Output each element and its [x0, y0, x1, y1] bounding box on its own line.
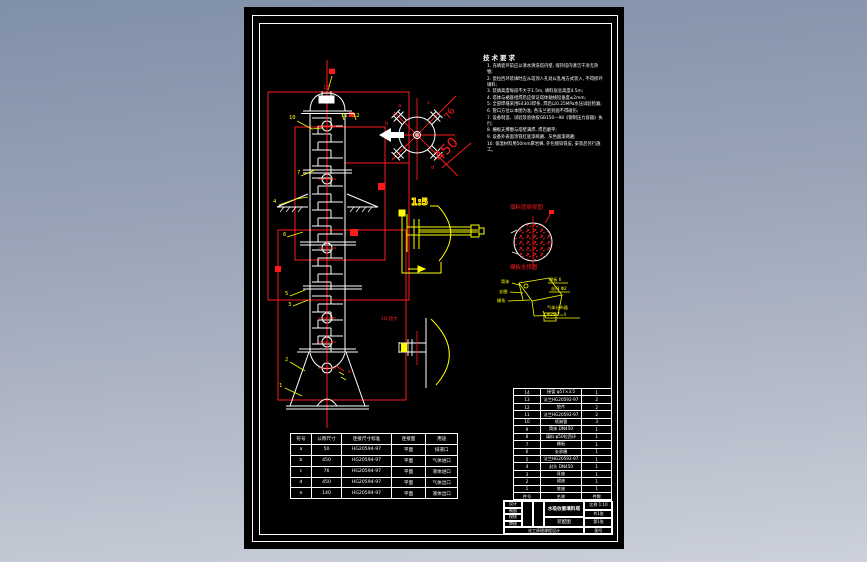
table-cell: 排液口	[426, 445, 457, 455]
support-label-bottom-2: Φ25 Z=4	[547, 312, 566, 317]
table-cell: 9	[514, 426, 541, 432]
note-line: 7. 设备制造、试验及验收按GB150—98《钢制压力容器》执行;	[487, 116, 603, 128]
notes-title: 技术要求	[483, 52, 517, 62]
table-cell: 1	[582, 456, 611, 462]
bom-table: 14接管 φ57×3.5113法兰HG20592-97212垫片211法兰HG2…	[513, 388, 612, 500]
table-row: e140HG20594-97平面液体出口	[291, 488, 457, 499]
sheets-cell: 共1张	[584, 510, 613, 519]
drawing-subtitle: 装配图	[544, 517, 584, 527]
table-cell: a	[291, 445, 312, 455]
table-cell: 2	[582, 404, 611, 410]
table-cell: 筒体 DN450	[541, 426, 582, 432]
signature-column	[522, 501, 533, 527]
table-cell: 1	[582, 463, 611, 469]
table-row: 3耳座1	[514, 471, 611, 478]
project-name: 化工原理课程设计	[504, 527, 584, 535]
support-label-left-2: 支圈	[499, 289, 507, 295]
table-cell: HG20594-97	[342, 445, 392, 455]
support-label-left-1: 筒体	[501, 279, 509, 285]
callout-1: 1	[279, 383, 282, 389]
drawing-no-cell: 图号	[584, 527, 613, 536]
callout-5: 5	[285, 291, 288, 297]
table-row: 6支承圈1	[514, 449, 611, 456]
table-cell: 7	[514, 441, 541, 447]
table-cell: 10	[514, 419, 541, 425]
table-cell: c	[291, 467, 312, 477]
title-block: 设计 制图 校核 审核 化工原理课程设计 水吸收氨填料塔 装配图 比例 1:10…	[503, 500, 612, 534]
callout-6: 6	[283, 232, 286, 238]
table-cell: b	[291, 456, 312, 466]
table-cell: 50	[312, 445, 342, 455]
table-header-cell: 连接面	[392, 434, 426, 444]
table-cell: 2	[514, 478, 541, 484]
note-line: 8. 栅板支撑圈与塔壁满焊, 焊后磨平;	[487, 128, 603, 134]
table-row: 14接管 φ57×3.51	[514, 389, 611, 396]
table-header-cell: 公称尺寸	[312, 434, 342, 444]
table-row: a50HG20594-97平面排液口	[291, 445, 457, 456]
callout-7: 7	[297, 170, 300, 176]
table-cell: 1	[582, 434, 611, 440]
date-column	[533, 501, 544, 527]
technical-notes: 1. 充填瓷环前应以清水清洗塔内壁, 保持塔内清洁干净无杂物; 2. 瓷拉西环装…	[487, 64, 603, 154]
callout-10: 10	[289, 115, 296, 121]
support-label-left-3: 栅条	[497, 298, 505, 304]
table-cell: 平面	[392, 445, 426, 455]
table-cell: 450	[312, 456, 342, 466]
detail-d-label: 1D 放大	[381, 316, 398, 322]
table-cell: 耳座	[541, 471, 582, 477]
table-cell: 裙座	[541, 478, 582, 484]
table-cell: 8	[514, 434, 541, 440]
table-cell: 4	[514, 463, 541, 469]
table-cell: 垫片	[541, 404, 582, 410]
nozzle-letter-e: e	[348, 369, 351, 375]
table-cell: 6	[514, 449, 541, 455]
cad-viewer-background: 76 450 1:5	[0, 0, 867, 562]
scale-cell: 比例 1:10	[584, 501, 613, 510]
table-row: 12垫片2	[514, 404, 611, 411]
table-cell: e	[291, 488, 312, 499]
callout-14: 14	[328, 68, 335, 74]
table-cell: 12	[514, 404, 541, 410]
table-cell: 法兰HG20592-97	[541, 456, 582, 462]
table-cell: 栅板	[541, 441, 582, 447]
support-label-bottom-1: 气体分布器	[547, 305, 568, 311]
callout-11: 11	[341, 113, 348, 119]
table-cell: 5	[514, 456, 541, 462]
table-cell: 法兰HG20592-97	[541, 411, 582, 417]
table-cell: 平面	[392, 456, 426, 466]
table-row: c76HG20594-97平面液体进口	[291, 467, 457, 478]
table-header-cell: 连接尺寸标准	[342, 434, 392, 444]
table-row: 4封头 DN4501	[514, 463, 611, 470]
drawing-title: 水吸收氨填料塔	[544, 501, 584, 517]
nozzle-letter-b: b	[385, 121, 388, 127]
note-line: 2. 瓷拉西环装填时应从塔顶人孔处以乱堆方式装入, 不得损坏填料;	[487, 77, 603, 89]
table-row: d450HG20594-97平面气体出口	[291, 478, 457, 489]
note-line: 3. 装填高度每段不大于1.5m, 填料层总高度4.5m;	[487, 89, 603, 95]
note-line: 10. 保温材料用50mm厚岩棉, 外包镀锌铁皮, 安装后另行施工。	[487, 142, 603, 154]
table-row: 7栅板1	[514, 441, 611, 448]
table-cell: 76	[312, 467, 342, 477]
table-row: 5法兰HG20592-971	[514, 456, 611, 463]
table-row: 10喷淋管3	[514, 419, 611, 426]
callout-3: 3	[288, 302, 291, 308]
callout-2: 2	[285, 357, 288, 363]
table-header-row: 符号 公称尺寸 连接尺寸标准 连接面 用途	[291, 434, 457, 445]
table-cell: HG20594-97	[342, 456, 392, 466]
nozzle-letter-c: c	[427, 100, 430, 106]
table-cell: 支承圈	[541, 449, 582, 455]
table-cell: 2	[582, 411, 611, 417]
table-cell: 1	[582, 441, 611, 447]
table-cell: 1	[514, 486, 541, 492]
table-cell: 14	[514, 389, 541, 395]
nozzle-schedule-table: 符号 公称尺寸 连接尺寸标准 连接面 用途 a50HG20594-97平面排液口…	[290, 433, 458, 499]
table-row: b450HG20594-97平面气体进口	[291, 456, 457, 467]
table-cell: 3	[514, 471, 541, 477]
table-cell: 法兰HG20592-97	[541, 396, 582, 402]
sheet-no-cell: 第1张	[584, 518, 613, 527]
table-row: 9筒体 DN4501	[514, 426, 611, 433]
packing-view-title: 填料层俯视图	[510, 203, 543, 211]
table-cell: HG20594-97	[342, 488, 392, 499]
table-header-cell: 用途	[426, 434, 457, 444]
table-row: 2裙座1	[514, 478, 611, 485]
table-cell: HG20594-97	[342, 467, 392, 477]
table-cell: 450	[312, 478, 342, 488]
table-cell: 13	[514, 396, 541, 402]
support-label-right-1: 棚板 Ⅱ	[549, 277, 561, 283]
note-line: 6. 管口方位以本图为准, 各法兰密封面不得碰伤;	[487, 109, 603, 115]
table-cell: 1	[582, 426, 611, 432]
table-cell: 接管 φ57×3.5	[541, 389, 582, 395]
table-row: 13法兰HG20592-972	[514, 396, 611, 403]
table-cell: 1	[582, 478, 611, 484]
callout-12: 12	[353, 113, 360, 119]
callout-4: 4	[273, 199, 276, 205]
note-line: 9. 设备外表面涂铁红底漆两遍、灰色面漆两遍;	[487, 135, 603, 141]
callout-13: 13	[323, 85, 330, 91]
table-cell: 填料 φ50拉西环	[541, 434, 582, 440]
table-row: 1底座1	[514, 486, 611, 493]
table-cell: 喷淋管	[541, 419, 582, 425]
table-cell: 11	[514, 411, 541, 417]
table-cell: 3	[582, 419, 611, 425]
table-cell: 1	[582, 389, 611, 395]
table-cell: 平面	[392, 488, 426, 499]
note-line: 5. 全部焊缝采用E4303焊条, 焊后以0.25MPa水压试验检漏;	[487, 102, 603, 108]
table-cell: HG20594-97	[342, 478, 392, 488]
table-cell: 1	[582, 471, 611, 477]
table-cell: 液体进口	[426, 467, 457, 477]
nozzle-letter-d: d	[431, 165, 434, 171]
table-cell: 1	[582, 449, 611, 455]
note-line: 4. 塔体与裙座组焊后应保证塔体轴线铅垂度≤2mm;	[487, 96, 603, 102]
table-cell: 封头 DN450	[541, 463, 582, 469]
table-cell: 气体进口	[426, 456, 457, 466]
table-cell: 2	[582, 396, 611, 402]
table-cell: 平面	[392, 467, 426, 477]
table-cell: 1	[582, 486, 611, 492]
nozzle-letter-a: a	[398, 103, 401, 109]
support-view-title: 栅板支撑图	[510, 263, 538, 271]
table-row: 11法兰HG20592-972	[514, 411, 611, 418]
table-row: 8填料 φ50拉西环1	[514, 434, 611, 441]
note-line: 1. 充填瓷环前应以清水清洗塔内壁, 保持塔内清洁干净无杂物;	[487, 64, 603, 76]
table-cell: 140	[312, 488, 342, 499]
table-cell: d	[291, 478, 312, 488]
table-cell: 底座	[541, 486, 582, 492]
support-label-right-2: 丝网 Φ2	[551, 286, 567, 292]
table-cell: 平面	[392, 478, 426, 488]
table-cell: 液体出口	[426, 488, 457, 499]
table-cell: 气体出口	[426, 478, 457, 488]
table-header-cell: 符号	[291, 434, 312, 444]
